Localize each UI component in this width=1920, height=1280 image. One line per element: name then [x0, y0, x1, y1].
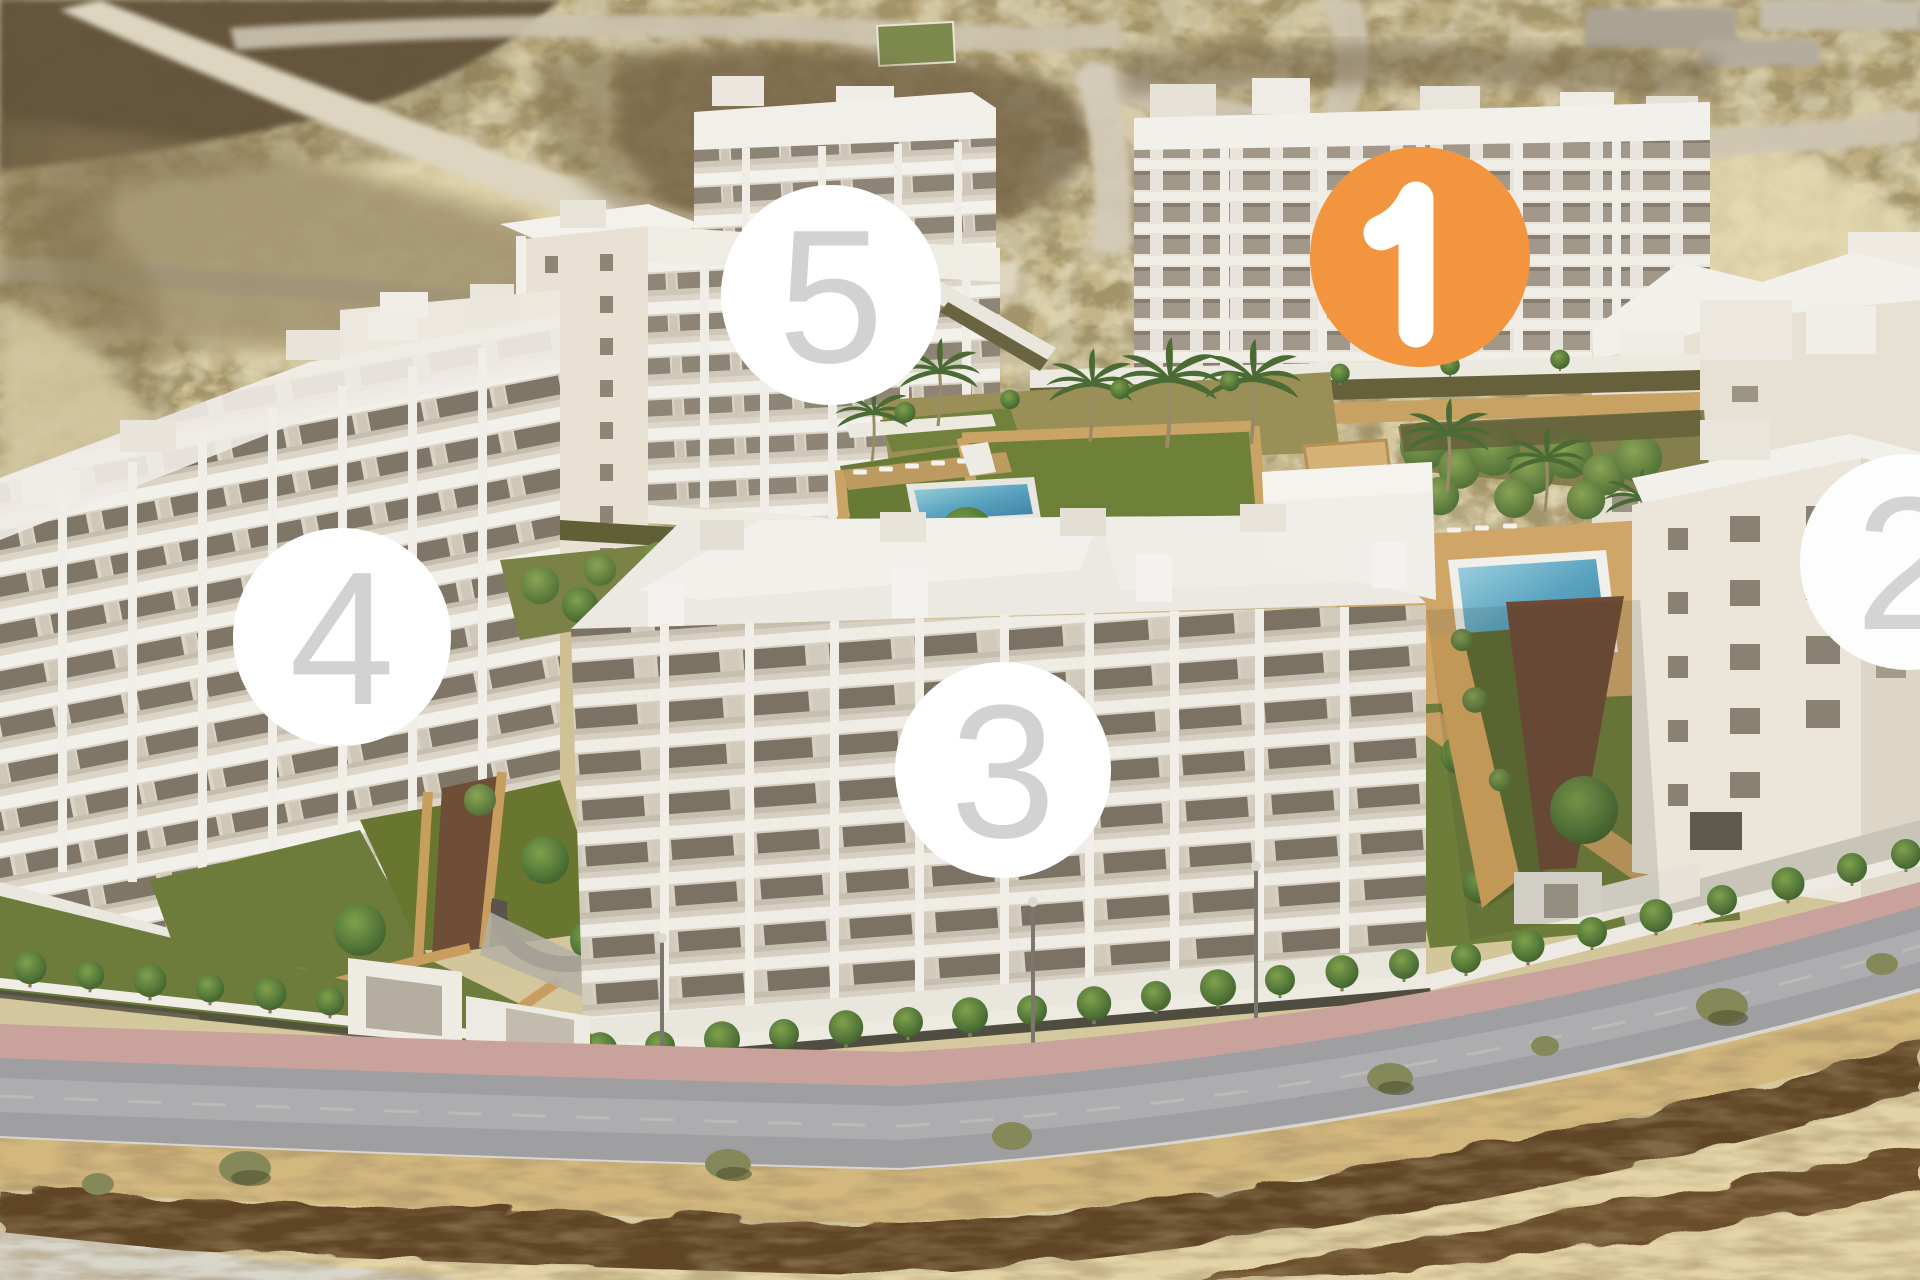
svg-text:2: 2: [1855, 458, 1920, 670]
svg-text:4: 4: [289, 533, 395, 745]
svg-text:5: 5: [778, 191, 884, 403]
svg-text:3: 3: [950, 666, 1056, 878]
